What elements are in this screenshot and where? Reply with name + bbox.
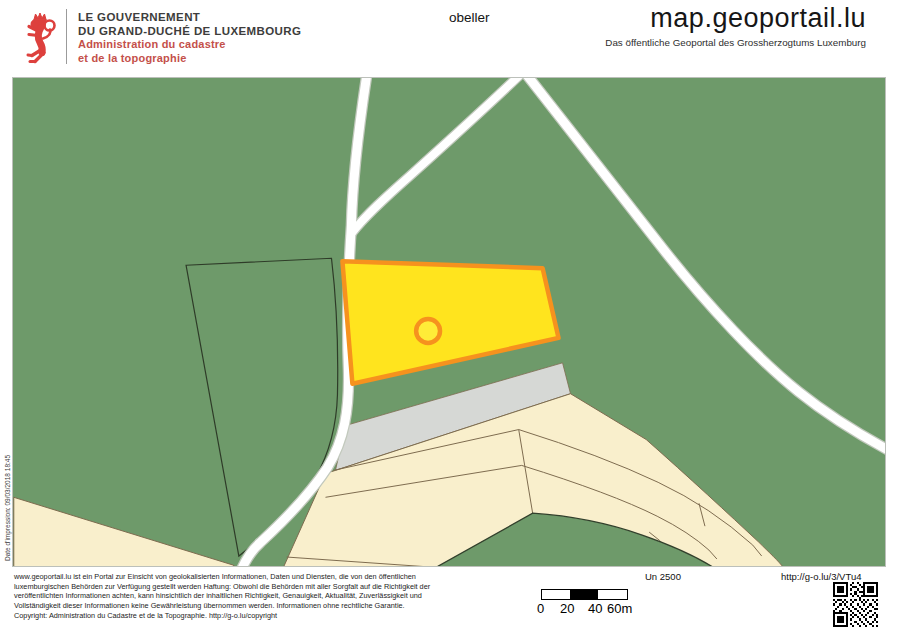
government-logo-text: LE GOUVERNEMENT DU GRAND-DUCHÉ DE LUXEMB… (78, 11, 301, 65)
qr-code-icon (833, 582, 878, 627)
scale-denominator: Un 2500 (645, 571, 681, 582)
scale-bar-graphic (541, 589, 628, 600)
disclaimer-text: www.geoportail.lu ist ein Portal zur Ein… (14, 572, 474, 621)
disclaimer-line: Copyright: Administration du Cadastre et… (14, 611, 474, 621)
site-header: map.geoportail.lu Das öffentliche Geopor… (605, 3, 866, 48)
disclaimer-line: www.geoportail.lu ist ein Portal zur Ein… (14, 572, 474, 582)
government-line-2: DU GRAND-DUCHÉ DE LUXEMBOURG (78, 25, 301, 39)
site-title: map.geoportail.lu (605, 3, 866, 34)
administration-line-1: Administration du cadastre (78, 38, 301, 52)
scale-label-20: 20 (560, 601, 574, 616)
share-url[interactable]: http://g-o.lu/3/VTu4 (781, 571, 861, 582)
parcel-point-marker (416, 319, 440, 343)
disclaimer-line: veröffentlichten Informationen achten, k… (14, 591, 474, 601)
lion-crown (34, 13, 46, 20)
site-subtitle: Das öffentliche Geoportal des Grossherzo… (605, 37, 866, 48)
luxembourg-lion-icon (26, 11, 56, 64)
government-line-1: LE GOUVERNEMENT (78, 11, 301, 25)
scale-bar: 0 20 40 60m (541, 589, 636, 616)
cadastral-map (13, 78, 885, 566)
scale-label-60m: 60m (607, 601, 632, 616)
scale-label-40: 40 (588, 601, 602, 616)
disclaimer-line: luxemburgischen Behörden zur Verfügung g… (14, 582, 474, 592)
disclaimer-line: Vollständigkeit dieser Informationen kei… (14, 601, 474, 611)
print-date: Date d'impression: 09/03/2018 18:45 (4, 455, 11, 561)
lion-body (38, 28, 42, 53)
map-title-label: obeller (449, 10, 490, 25)
print-page: LE GOUVERNEMENT DU GRAND-DUCHÉ DE LUXEMB… (0, 0, 900, 636)
scale-bar-labels: 0 20 40 60m (541, 600, 636, 616)
map-canvas (12, 77, 886, 567)
administration-line-2: et de la topographie (78, 52, 301, 66)
logo-divider (66, 9, 67, 64)
scale-label-0: 0 (537, 601, 544, 616)
